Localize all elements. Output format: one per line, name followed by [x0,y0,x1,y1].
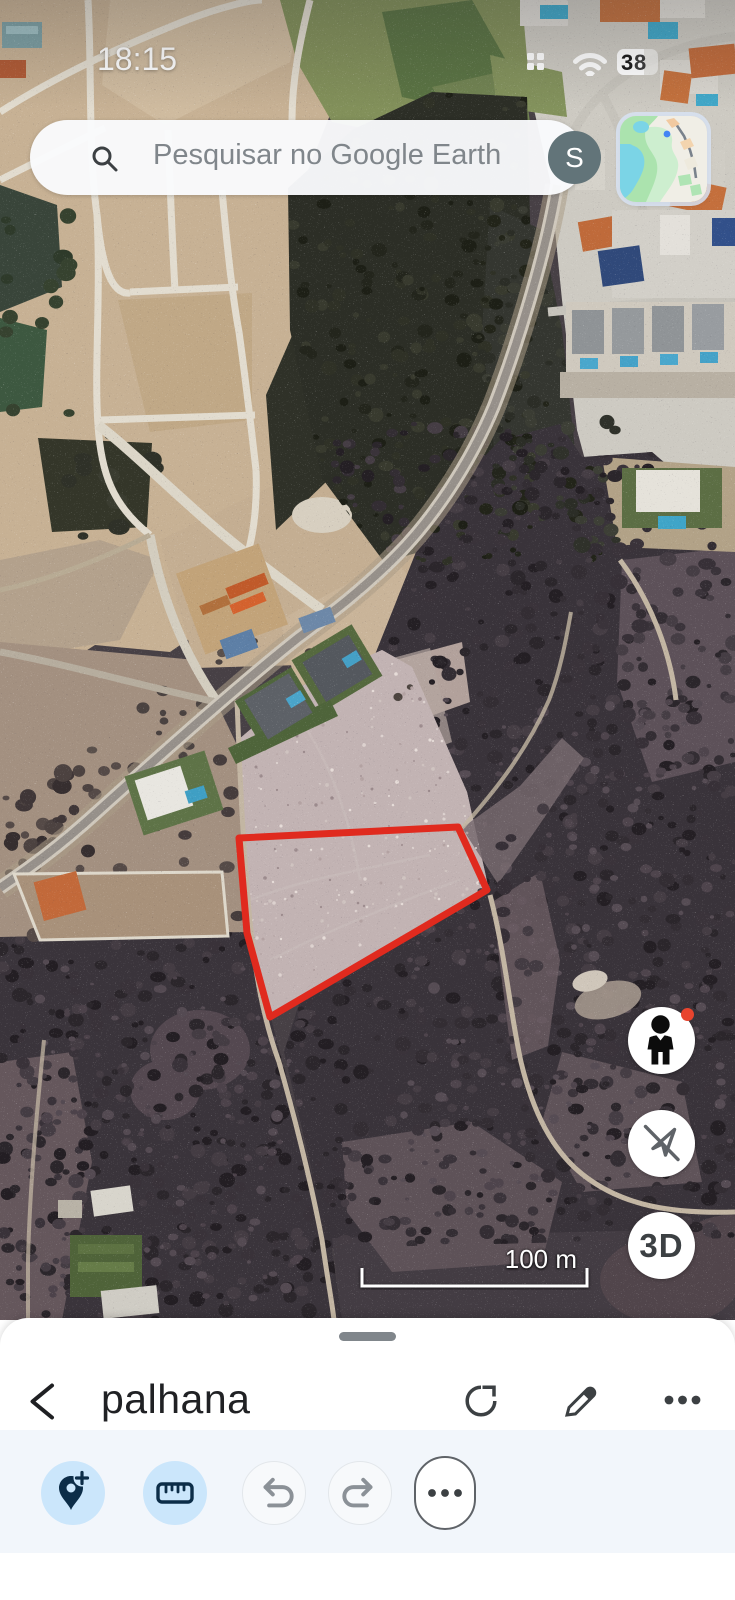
svg-text:3: 3 [621,50,633,75]
svg-text:8: 8 [634,50,646,75]
